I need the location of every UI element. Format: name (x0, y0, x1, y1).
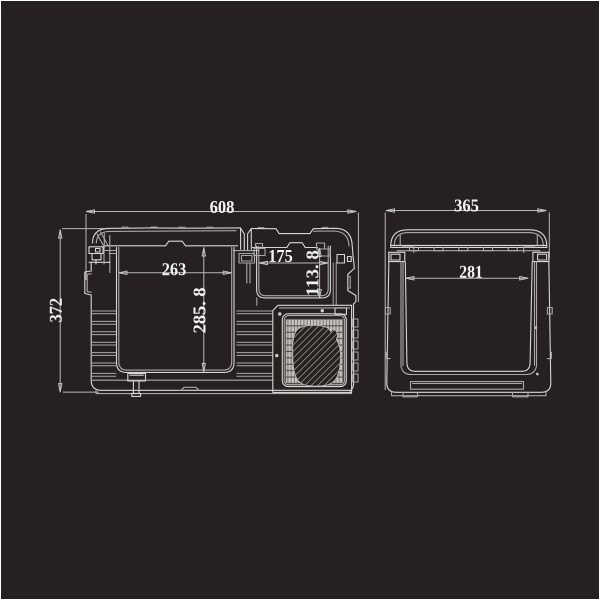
svg-text:285. 8: 285. 8 (190, 287, 210, 333)
svg-text:113. 8: 113. 8 (302, 250, 322, 296)
svg-text:281: 281 (459, 262, 483, 282)
svg-text:365: 365 (454, 195, 479, 215)
svg-text:263: 263 (162, 259, 187, 279)
svg-text:175: 175 (268, 246, 293, 266)
svg-text:608: 608 (210, 197, 235, 217)
svg-text:372: 372 (46, 298, 66, 323)
